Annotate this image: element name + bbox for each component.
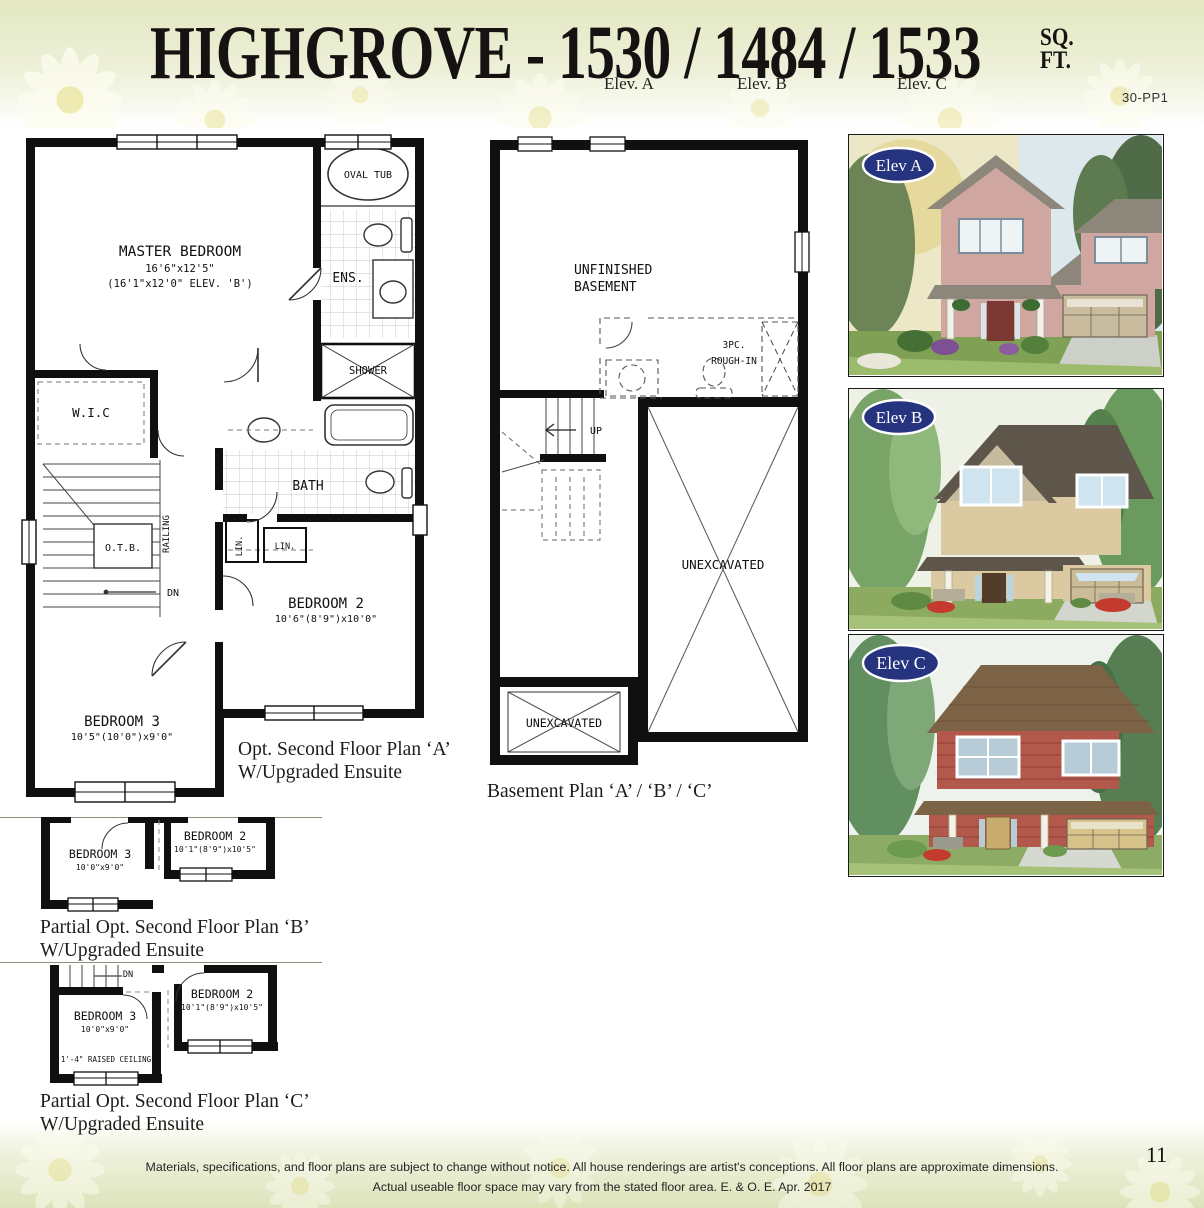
elevation-c-rendering: Elev C	[848, 634, 1164, 877]
plan-c-bedroom2-label: BEDROOM 2	[191, 987, 253, 1001]
basement-plan: UNFINISHED BASEMENT 3PC. ROUGH-IN UP UNE…	[482, 132, 814, 782]
room-label-otb: O.T.B.	[105, 543, 141, 554]
dn-arrow	[104, 590, 156, 594]
plan-c-caption: Partial Opt. Second Floor Plan ‘C’ W/Upg…	[40, 1090, 310, 1136]
room-label-bath: BATH	[292, 479, 323, 494]
bathtub	[325, 405, 413, 445]
elevation-a-art: Elev A	[849, 135, 1162, 375]
rough-in-area	[600, 318, 798, 398]
basement-caption: Basement Plan ‘A’ / ‘B’ / ‘C’	[487, 780, 713, 803]
brochure-page: HIGHGROVE - 1530 / 1484 / 1533 SQ. FT. E…	[0, 0, 1204, 1208]
elevation-a-rendering: Elev A	[848, 134, 1164, 377]
elev-a-garage-door	[1063, 295, 1147, 337]
plan-c-stairs	[70, 965, 122, 988]
label-basement: BASEMENT	[574, 280, 637, 295]
up-arrow	[546, 424, 576, 436]
room-label-bedroom3: BEDROOM 3	[84, 714, 160, 730]
room-dim-master1: 16'6"x12'5"	[145, 263, 215, 275]
plan-c-caption-line2: W/Upgraded Ensuite	[40, 1113, 310, 1136]
plan-b-door-swing	[102, 823, 128, 849]
label-3pc: 3PC.	[723, 340, 746, 351]
elev-a-badge: Elev A	[863, 148, 935, 182]
label-unfinished: UNFINISHED	[574, 263, 652, 278]
room-label-oval-tub: OVAL TUB	[344, 170, 392, 181]
plan-c-bedroom2-dim: 10'1"(8'9")x10'5"	[181, 1003, 263, 1012]
plan-code: 30-PP1	[1122, 90, 1168, 105]
plan-c-raised-ceiling-label: 1'-4" RAISED CEILING	[61, 1055, 152, 1064]
disclaimer-line1: Materials, specifications, and floor pla…	[0, 1158, 1204, 1178]
plan-b-caption-line2: W/Upgraded Ensuite	[40, 939, 310, 962]
basement-walls	[490, 140, 808, 765]
label-rough-in: ROUGH-IN	[711, 356, 757, 367]
plan-b-bedroom2-dim: 10'1"(8'9")x10'5"	[174, 845, 256, 854]
room-label-wic: W.I.C	[72, 405, 110, 420]
room-label-master: MASTER BEDROOM	[119, 244, 241, 260]
room-dim-master2: (16'1"x12'0" ELEV. 'B')	[107, 278, 252, 290]
label-up: UP	[590, 426, 602, 437]
plan-a-caption-line2: W/Upgraded Ensuite	[238, 761, 451, 784]
basement-stairs	[502, 398, 600, 540]
page-title: HIGHGROVE - 1530 / 1484 / 1533	[150, 10, 981, 97]
room-label-bedroom2: BEDROOM 2	[288, 596, 364, 612]
plan-c-bedroom3-label: BEDROOM 3	[74, 1009, 136, 1023]
room-label-shower: SHOWER	[349, 365, 388, 377]
plan-a-caption: Opt. Second Floor Plan ‘A’ W/Upgraded En…	[238, 738, 451, 784]
basement-windows	[518, 137, 809, 272]
elev-c-badge-label: Elev C	[876, 653, 926, 673]
elev-a-sublabel: Elev. A	[604, 74, 654, 94]
plan-b-bedroom3-dim: 10'0"x9'0"	[76, 863, 124, 872]
elev-b-badge: Elev B	[863, 400, 935, 434]
plan-b-bedroom2-label: BEDROOM 2	[184, 829, 246, 843]
room-dim-bedroom3: 10'5"(10'0")x9'0"	[71, 732, 173, 743]
room-label-lin1: LIN.	[235, 536, 245, 556]
elevation-c-art: Elev C	[849, 635, 1162, 875]
elevation-b-rendering: Elev B	[848, 388, 1164, 631]
plan-b-bedroom3-label: BEDROOM 3	[69, 847, 131, 861]
label-unexcavated-right: UNEXCAVATED	[682, 557, 765, 572]
plan-b-caption: Partial Opt. Second Floor Plan ‘B’ W/Upg…	[40, 916, 310, 962]
partial-plan-b: BEDROOM 3 10'0"x9'0" BEDROOM 2 10'1"(8'9…	[8, 812, 308, 916]
sq-label: SQ.	[1040, 26, 1074, 49]
room-dim-bedroom2: 10'6"(8'9")x10'0"	[275, 614, 377, 625]
partial-plan-c: DN BEDROOM 3 10'0"x9'0" 1'-4" RAISED CEI…	[8, 962, 308, 1088]
ft-label: FT.	[1040, 49, 1074, 72]
elev-b-badge-label: Elev B	[876, 408, 923, 427]
page-number: 11	[1146, 1142, 1167, 1168]
disclaimer-line2: Actual useable floor space may vary from…	[0, 1178, 1204, 1198]
elev-c-garage-door	[1067, 819, 1147, 849]
plan-b-labels: BEDROOM 3 10'0"x9'0" BEDROOM 2 10'1"(8'9…	[69, 829, 256, 872]
disclaimer: Materials, specifications, and floor pla…	[0, 1158, 1204, 1198]
plan-c-walls	[50, 965, 278, 1083]
plan-c-caption-line1: Partial Opt. Second Floor Plan ‘C’	[40, 1090, 310, 1113]
elev-b-sublabel: Elev. B	[737, 74, 787, 94]
room-label-dn: DN	[167, 588, 179, 599]
sqft-unit: SQ. FT.	[1040, 26, 1074, 72]
label-unexcavated-bottom: UNEXCAVATED	[526, 716, 602, 730]
elevation-b-art: Elev B	[849, 389, 1162, 629]
plan-a-caption-line1: Opt. Second Floor Plan ‘A’	[238, 738, 451, 761]
room-label-ens: ENS.	[332, 271, 363, 286]
floor-plan-a: MASTER BEDROOM 16'6"x12'5" (16'1"x12'0" …	[18, 130, 432, 805]
room-label-lin2: LIN.	[275, 542, 295, 552]
plan-b-caption-line1: Partial Opt. Second Floor Plan ‘B’	[40, 916, 310, 939]
room-label-railing: RAILING	[162, 515, 172, 553]
elev-c-sublabel: Elev. C	[897, 74, 947, 94]
plan-c-dn-label: DN	[123, 970, 133, 980]
elev-c-badge: Elev C	[863, 645, 939, 681]
plan-c-bedroom3-dim: 10'0"x9'0"	[81, 1025, 129, 1034]
elev-a-badge-label: Elev A	[876, 156, 923, 175]
